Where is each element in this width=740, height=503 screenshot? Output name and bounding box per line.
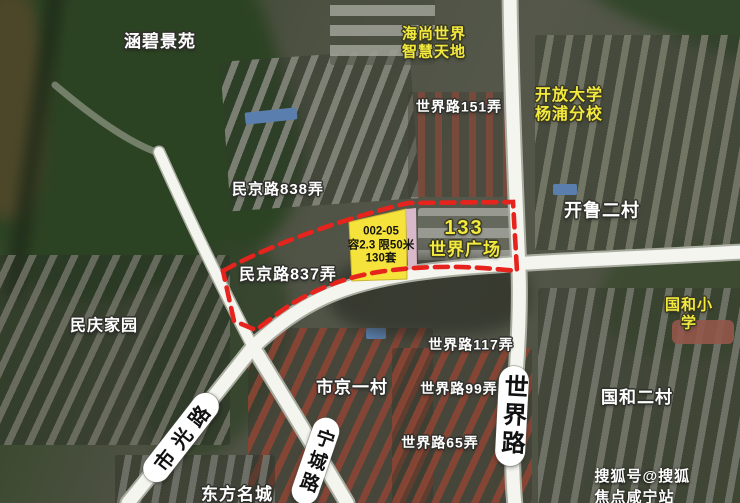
sohu-watermark: 搜狐号@搜狐焦点咸宁站: [595, 465, 692, 503]
satellite-map: 涵碧景苑 海尚世界 智慧天地 世界路151弄 开放大学 杨浦分校 民京路838弄…: [0, 0, 740, 503]
road-shiguang-upper: [159, 152, 253, 347]
parcel-pink-strip: [406, 208, 417, 270]
road-pill-shijie-road: 世界路: [494, 365, 529, 466]
road-minjing: [253, 252, 740, 347]
road-faint-topleft: [55, 85, 159, 153]
roads-layer: [0, 0, 740, 503]
